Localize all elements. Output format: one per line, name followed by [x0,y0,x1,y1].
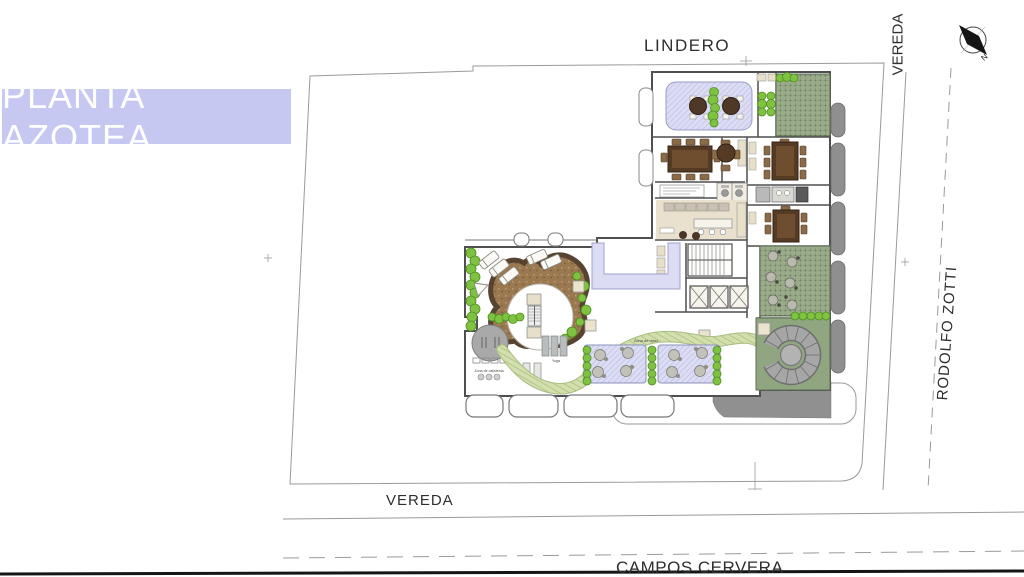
spiral-ramp [756,312,830,390]
ludic-room [666,82,752,130]
street-centerline-campos [283,551,1024,558]
service-strip [660,185,704,197]
green-terrace [760,246,830,316]
sheet-title: PLANTA AZOTEA [2,89,291,144]
elevator-bank [690,286,748,308]
compass-north-letter: N [979,52,989,63]
floor-plan-sheet: Zona de calistenia Yoga Zona de relax [0,0,1024,577]
sheet-bottom-rule [0,571,1024,574]
terrace-parapet [465,233,597,246]
calisthenics-label: Zona de calistenia [474,369,503,373]
street-label-vereda-top: VEREDA [890,7,907,83]
sheet-title-text: PLANTA AZOTEA [2,75,291,159]
yoga-label: Yoga [552,359,560,363]
street-label-vereda-bottom: VEREDA [386,492,454,509]
bottom-balconies [466,395,674,417]
kitchenette [756,187,808,202]
right-balconies [831,103,845,373]
street-label-campos-cervera: CAMPOS CERVERA [616,558,783,577]
stairwell [688,244,732,276]
left-balconies [639,88,653,186]
green-roof [776,73,830,137]
toilets [717,183,747,202]
deck-stair [527,294,541,338]
relax-label: Zona de relax [634,338,658,343]
street-label-lindero: LINDERO [644,36,730,56]
street-line-vereda-bottom [283,512,1024,519]
bar-counter [694,219,732,228]
lounge-bar [656,200,746,240]
north-compass: N [959,25,990,63]
street-line-rodolfo-solid [883,72,906,490]
